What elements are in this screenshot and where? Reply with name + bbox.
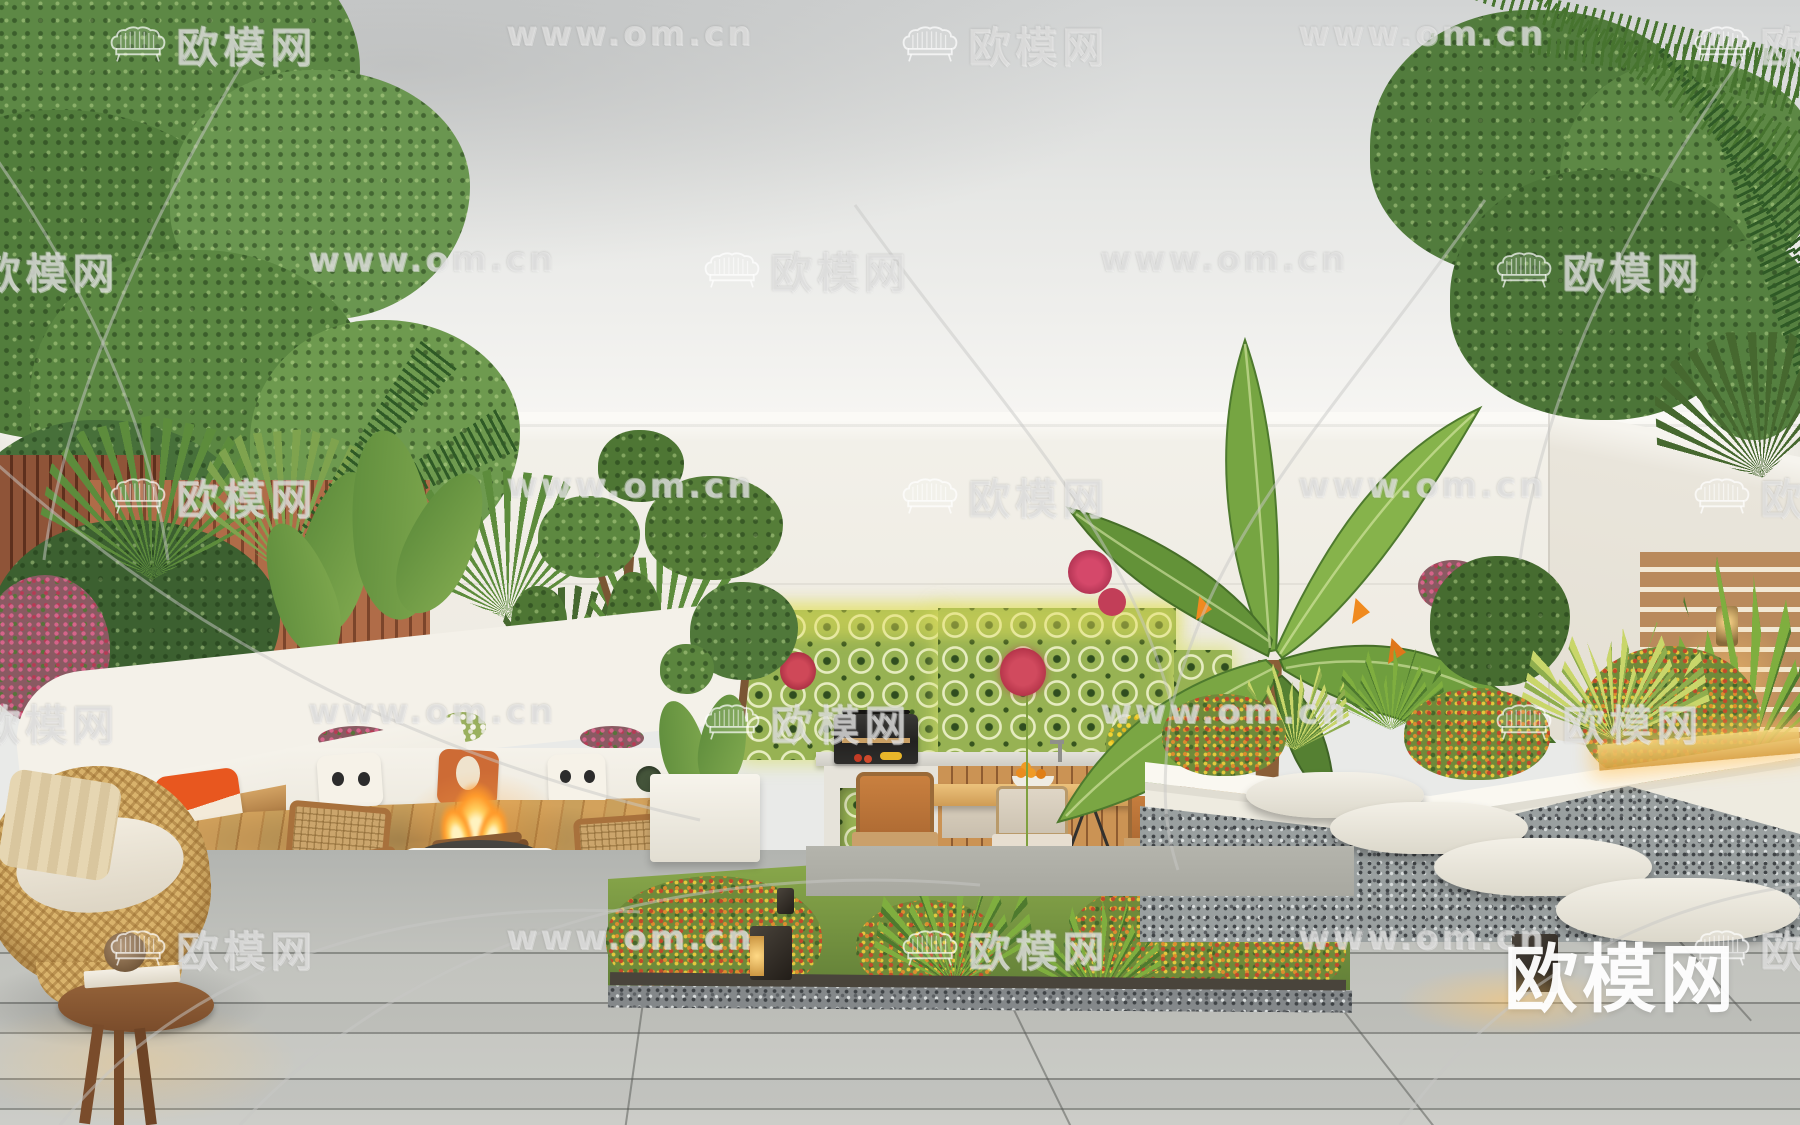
watermark-corner: 欧模网 [1504, 920, 1738, 1027]
courtyard-render: www.om.cn 欧模网www.om.cn 欧模网www.om.cn 欧模网w… [0, 0, 1800, 1125]
